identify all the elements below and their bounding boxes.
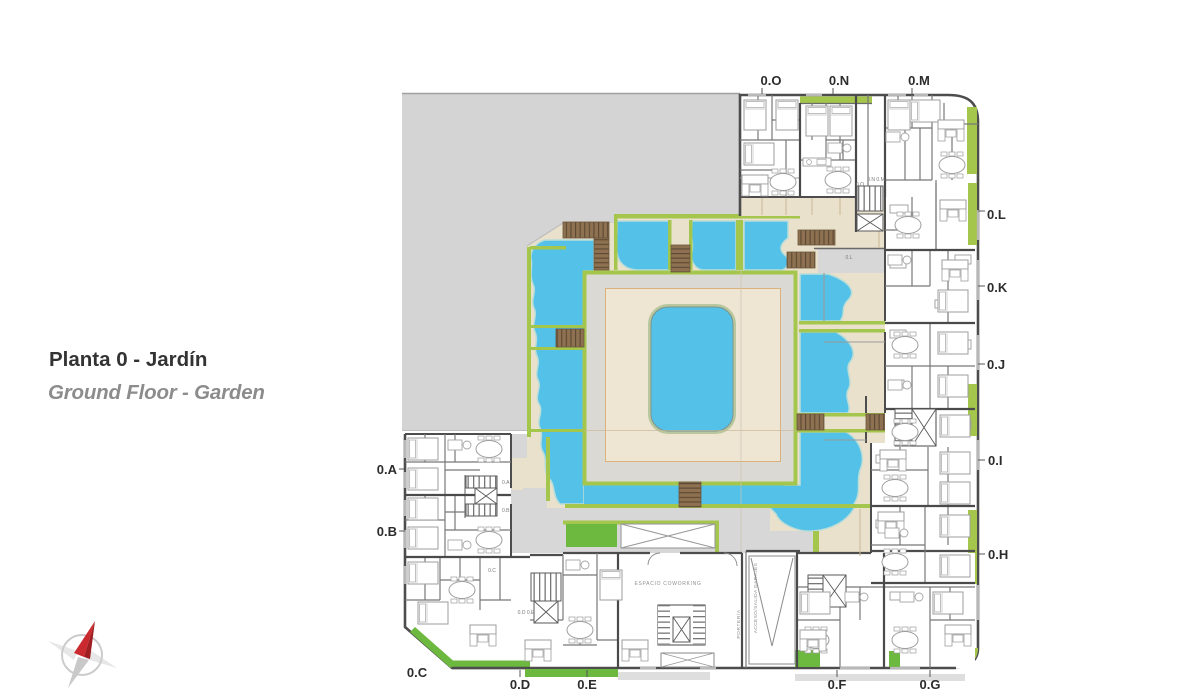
svg-text:ESPACIO COWORKING: ESPACIO COWORKING (634, 581, 701, 587)
svg-text:0.J: 0.J (987, 357, 1005, 372)
svg-text:0.N: 0.N (829, 73, 849, 88)
svg-text:0.G: 0.G (920, 677, 941, 692)
svg-text:0.L: 0.L (846, 255, 853, 261)
svg-text:ACCESO/SALIDA GARAJES: ACCESO/SALIDA GARAJES (753, 563, 759, 634)
svg-text:0.K: 0.K (987, 280, 1008, 295)
svg-text:0.O: 0.O (761, 73, 782, 88)
svg-text:0.E: 0.E (577, 677, 597, 692)
svg-text:0.D 0.E: 0.D 0.E (518, 610, 535, 616)
svg-text:0.A: 0.A (502, 480, 510, 486)
svg-text:0.O: 0.O (856, 182, 864, 188)
svg-text:0.I: 0.I (988, 453, 1002, 468)
svg-text:0.B: 0.B (502, 508, 510, 514)
svg-text:0.H: 0.H (988, 547, 1008, 562)
svg-text:0.B: 0.B (377, 524, 397, 539)
svg-text:0.A: 0.A (377, 462, 398, 477)
svg-text:0.C: 0.C (488, 568, 496, 574)
svg-text:0.D: 0.D (510, 677, 530, 692)
svg-text:0.C: 0.C (407, 665, 428, 680)
svg-text:0.L: 0.L (987, 207, 1006, 222)
svg-text:Planta 0 - Jardín: Planta 0 - Jardín (49, 348, 207, 371)
svg-text:0.F: 0.F (828, 677, 847, 692)
svg-text:0.M: 0.M (908, 73, 930, 88)
svg-text:Ground Floor - Garden: Ground Floor - Garden (48, 381, 265, 404)
svg-text:0.N 0.M: 0.N 0.M (867, 177, 885, 183)
svg-text:PORTERÍA: PORTERÍA (735, 609, 742, 638)
